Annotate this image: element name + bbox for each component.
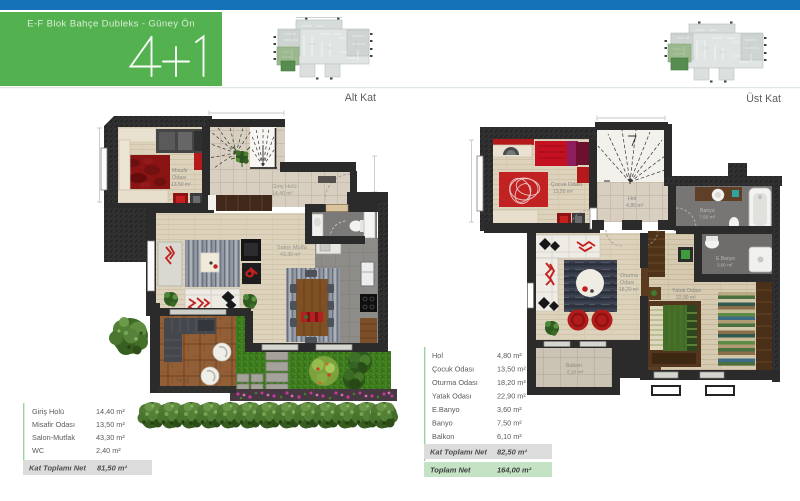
svg-text:43,30 m²: 43,30 m²: [96, 433, 125, 442]
svg-text:E.Banyo: E.Banyo: [432, 405, 460, 414]
svg-text:13,50 m²: 13,50 m²: [171, 182, 191, 188]
svg-text:3,60 m²: 3,60 m²: [497, 405, 522, 414]
svg-text:Toplam Net: Toplam Net: [430, 466, 471, 475]
svg-text:Balkon: Balkon: [566, 363, 582, 369]
svg-text:Hol: Hol: [628, 196, 636, 202]
svg-text:14,40 m²: 14,40 m²: [272, 191, 293, 197]
svg-text:Odası: Odası: [620, 280, 634, 286]
svg-text:Oturma: Oturma: [620, 273, 638, 279]
svg-text:4,80 m²: 4,80 m²: [497, 351, 522, 360]
svg-text:164,00 m²: 164,00 m²: [497, 466, 532, 475]
svg-text:Giriş Holü: Giriş Holü: [272, 184, 297, 190]
svg-text:Yatak Odası: Yatak Odası: [672, 288, 701, 294]
svg-text:Misafir: Misafir: [172, 168, 188, 174]
svg-text:Teras: Teras: [176, 378, 189, 384]
svg-text:6,10 m²: 6,10 m²: [567, 370, 584, 376]
svg-text:81,50 m²: 81,50 m²: [97, 464, 128, 473]
svg-text:7,50 m²: 7,50 m²: [497, 419, 522, 428]
svg-text:82,50 m²: 82,50 m²: [497, 448, 528, 457]
svg-text:13,50 m²: 13,50 m²: [96, 420, 125, 429]
svg-text:E-F Blok Bahçe Dubleks - Güney: E-F Blok Bahçe Dubleks - Güney Ön: [27, 19, 195, 30]
svg-text:Kat Toplamı Net: Kat Toplamı Net: [430, 448, 487, 457]
svg-text:14,40 m²: 14,40 m²: [96, 407, 125, 416]
svg-text:Balkon: Balkon: [432, 432, 454, 441]
svg-text:Giriş Holü: Giriş Holü: [32, 407, 64, 416]
svg-text:Salon-Mutfak: Salon-Mutfak: [32, 433, 75, 442]
svg-text:Odası: Odası: [172, 175, 186, 181]
svg-text:WC: WC: [32, 446, 44, 455]
svg-text:Alt Kat: Alt Kat: [345, 92, 376, 104]
svg-text:6,10 m²: 6,10 m²: [497, 432, 522, 441]
svg-text:13,50 m²: 13,50 m²: [497, 365, 526, 374]
svg-text:Çocuk Odası: Çocuk Odası: [432, 365, 474, 374]
svg-text:22,90 m²: 22,90 m²: [676, 295, 696, 301]
svg-text:E.Banyo: E.Banyo: [716, 256, 735, 262]
svg-text:Yatak Odası: Yatak Odası: [432, 392, 472, 401]
svg-text:43,30 m²: 43,30 m²: [280, 252, 301, 258]
svg-text:18,20 m²: 18,20 m²: [619, 287, 639, 293]
svg-text:13,50 m²: 13,50 m²: [553, 189, 573, 195]
svg-text:7,50 m²: 7,50 m²: [699, 215, 716, 221]
svg-text:18,20 m²: 18,20 m²: [497, 378, 526, 387]
svg-text:Salon Mutfa: Salon Mutfa: [277, 245, 308, 251]
svg-text:22,90 m²: 22,90 m²: [497, 392, 526, 401]
svg-text:Kat Toplamı Net: Kat Toplamı Net: [29, 464, 86, 473]
svg-text:3,60 m²: 3,60 m²: [717, 263, 733, 268]
svg-text:Misafir Odası: Misafir Odası: [32, 420, 75, 429]
svg-text:Hol: Hol: [432, 351, 443, 360]
svg-text:4,80 m²: 4,80 m²: [626, 203, 644, 209]
svg-text:Banyo: Banyo: [700, 208, 715, 214]
svg-text:Banyo: Banyo: [432, 419, 453, 428]
svg-text:Üst Kat: Üst Kat: [746, 93, 781, 105]
svg-text:Çocuk Odası: Çocuk Odası: [551, 182, 582, 188]
svg-text:2,40 m²: 2,40 m²: [96, 446, 121, 455]
svg-text:Oturma Odası: Oturma Odası: [432, 378, 478, 387]
